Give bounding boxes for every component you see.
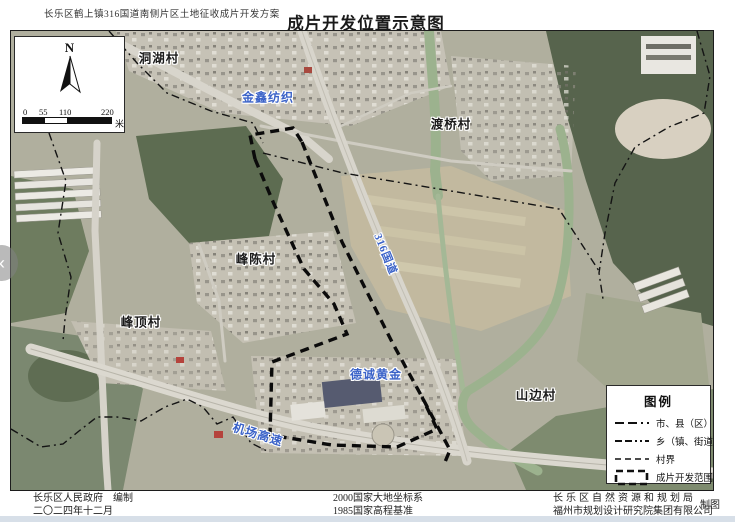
scale-tick: 110 (59, 107, 71, 117)
legend-item-label: 市、县（区）界 (656, 416, 714, 430)
map-label-jinxin-textile: 金鑫纺织 (242, 89, 294, 106)
legend-item-label: 村界 (656, 452, 675, 466)
north-label: N (57, 41, 83, 54)
scale-unit: 米 (115, 117, 124, 130)
legend-item-label: 成片开发范围 (656, 470, 713, 484)
scale-tick: 0 (23, 107, 27, 117)
chevron-left-icon: ‹ (0, 253, 5, 274)
map-document-viewer: { "header": { "plan_title": "长乐区鹤上镇316国道… (0, 0, 735, 522)
bold-dashed-rectangle-icon (614, 469, 650, 486)
map-label-donghu-village: 洞湖村 (139, 48, 180, 67)
map-footer: 长乐区人民政府 编制 二〇二四年十二月 2000国家大地坐标系 1985国家高程… (0, 489, 735, 516)
footer-datum-block: 2000国家大地坐标系 1985国家高程基准 (333, 492, 423, 518)
scale-tick: 55 (39, 107, 48, 117)
page-background-strip (0, 516, 735, 522)
scale-ticks: 0 55 110 220 (22, 107, 122, 117)
north-arrow-scale-inset: N 0 55 110 220 米 (14, 36, 125, 133)
map-label-fengding-village: 峰顶村 (121, 312, 162, 331)
legend-item-label: 乡（镇、街道）界 (656, 434, 714, 448)
scale-tick: 220 (101, 107, 114, 117)
short-dashed-line-icon (614, 454, 650, 464)
legend-item-city-county-boundary: 市、县（区）界 (614, 414, 703, 432)
map-label-duqiao-village: 渡桥村 (431, 114, 472, 133)
document-page: 长乐区鹤上镇316国道南侧片区土地征收成片开发方案 成片开发位置示意图 (0, 0, 735, 516)
legend-item-township-boundary: 乡（镇、街道）界 (614, 432, 703, 450)
plan-title: 长乐区鹤上镇316国道南侧片区土地征收成片开发方案 (44, 6, 280, 20)
map-label-shanbian-village: 山边村 (516, 385, 557, 404)
map-label-fengchen-village: 峰陈村 (236, 249, 277, 268)
legend-item-village-boundary: 村界 (614, 450, 703, 468)
footer-cartography: 制图 (700, 499, 720, 512)
footer-compiler: 长乐区人民政府 编制 (33, 492, 133, 505)
legend-box: 图例 市、县（区）界 乡（镇、街道）界 村界 (606, 385, 711, 484)
footer-compiler-block: 长乐区人民政府 编制 二〇二四年十二月 (33, 492, 133, 518)
legend-title: 图例 (614, 391, 703, 410)
scale-bar-graphic (22, 117, 112, 124)
map-frame: 洞湖村 金鑫纺织 渡桥村 316国道 峰陈村 峰顶村 德诚黄金 山边村 机场高速… (10, 30, 714, 491)
dash-dash-dot-dot-line-icon (614, 436, 650, 446)
scale-bar: 0 55 110 220 米 (22, 107, 122, 124)
footer-bureau: 长乐区自然资源和规划局 (553, 492, 713, 505)
north-arrow: N (57, 41, 83, 101)
north-arrow-icon (57, 54, 83, 96)
legend-item-development-area: 成片开发范围 (614, 468, 703, 486)
map-label-decheng-gold: 德诚黄金 (350, 366, 402, 383)
footer-datum: 2000国家大地坐标系 (333, 492, 423, 505)
dash-dash-dot-line-icon (614, 418, 650, 428)
footer-agency-block: 长乐区自然资源和规划局 福州市规划设计研究院集团有限公司 (553, 492, 713, 518)
